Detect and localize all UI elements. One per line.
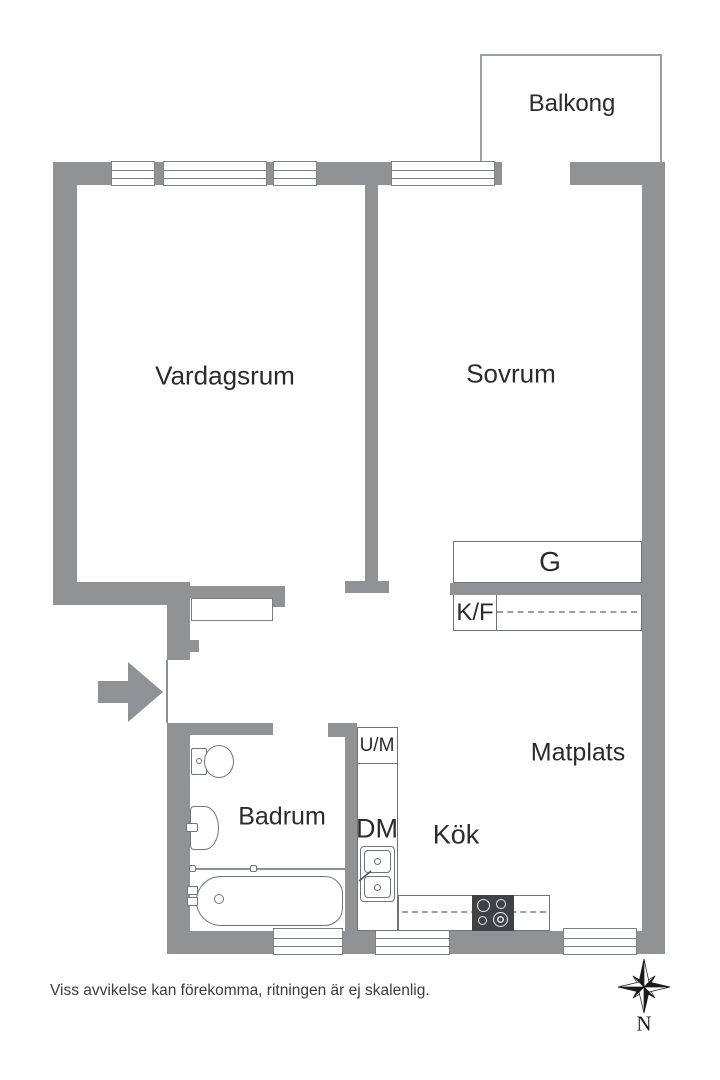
bathtub-faucet (187, 886, 198, 895)
window-glazing (376, 938, 449, 947)
room-label-balkong: Balkong (529, 90, 616, 118)
compass-rose-icon (613, 956, 675, 1018)
window (273, 161, 317, 186)
stove-burner (477, 899, 490, 912)
compass-north-label: N (636, 1012, 651, 1037)
shower-rail-bracket (250, 865, 257, 872)
wardrobe-label: G (539, 546, 561, 578)
bathtub-drain (214, 894, 224, 904)
stove-burner (493, 912, 508, 927)
balcony-door-opening (502, 162, 570, 185)
kitchen-faucet-icon (358, 868, 374, 882)
wall-entry-side (167, 605, 190, 660)
floor-plan: Balkong Vardagsrum Sovrum Matplats Kök B… (0, 0, 720, 1080)
window-glazing (564, 938, 636, 947)
sink-drain (374, 884, 381, 891)
window (375, 928, 450, 955)
wall-top-right (570, 162, 665, 185)
sink-drain (374, 858, 381, 865)
stove-burner (496, 899, 506, 909)
entry-arrow-icon (98, 662, 164, 723)
window-glazing (392, 170, 494, 179)
stove-burner (478, 916, 487, 925)
disclaimer-text: Viss avvikelse kan förekomma, ritningen … (50, 982, 430, 1000)
wall-hall (190, 586, 285, 598)
wall-entry-notch (190, 640, 199, 652)
dishwasher-label: DM (356, 814, 398, 845)
window (563, 928, 637, 955)
counter-dashed-line (497, 611, 637, 613)
window (111, 161, 155, 186)
window (391, 161, 495, 186)
wall-left-upper (53, 185, 77, 605)
wall-hall-jamb (271, 598, 285, 607)
room-label-kok: Kök (433, 820, 480, 851)
wall-bedroom-bottom (450, 583, 642, 595)
room-label-badrum: Badrum (238, 803, 326, 832)
wall-middle-end (345, 581, 389, 593)
room-label-sovrum: Sovrum (466, 359, 556, 390)
window (273, 928, 343, 955)
window (163, 161, 267, 186)
room-label-matplats: Matplats (531, 739, 625, 768)
wall-middle (365, 185, 378, 581)
window-glazing (164, 170, 266, 179)
room-label-vardagsrum: Vardagsrum (155, 361, 295, 392)
shower-rail (190, 868, 345, 870)
wall-livingroom-bottom (53, 582, 190, 605)
toilet-flush-button (196, 758, 202, 764)
shower-rail-bracket (189, 865, 196, 872)
window-glazing (274, 938, 342, 947)
entrance-door-leaf (191, 598, 273, 621)
bathroom-sink-tap (186, 823, 198, 832)
entrance-threshold-line (166, 660, 168, 723)
window-glazing (112, 170, 154, 179)
fridge-freezer-label: K/F (456, 599, 493, 627)
bathtub-faucet (187, 897, 198, 906)
washer-label: U/M (360, 735, 395, 757)
window-glazing (274, 170, 316, 179)
toilet-bowl (204, 745, 234, 778)
wall-bathroom-top-left (188, 723, 273, 735)
wall-right (642, 185, 665, 954)
